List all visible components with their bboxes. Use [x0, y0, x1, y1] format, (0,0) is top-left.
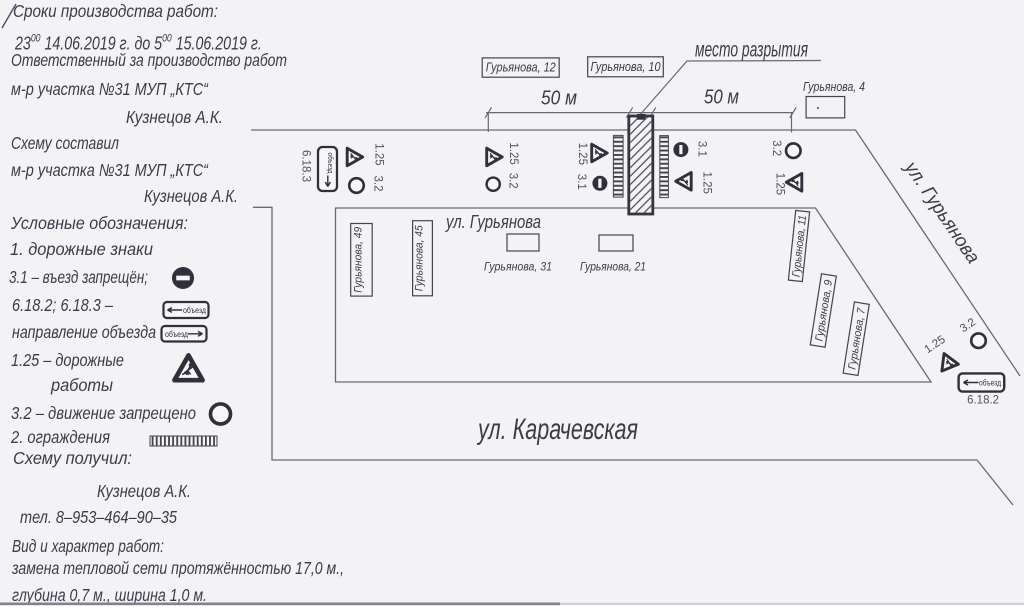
svg-text:2. ограждения: 2. ограждения	[10, 427, 110, 447]
svg-text:3.2: 3.2	[372, 176, 384, 192]
svg-text:Ответственный за производство: Ответственный за производство работ	[11, 50, 287, 70]
svg-text:1. дорожные знаки: 1. дорожные знаки	[10, 239, 153, 259]
svg-text:3.1: 3.1	[696, 141, 708, 157]
svg-text:50 м: 50 м	[704, 86, 739, 109]
svg-text:6.18.3: 6.18.3	[300, 150, 312, 182]
svg-text:1.25: 1.25	[576, 143, 588, 165]
svg-text:Вид и характер работ:: Вид и характер работ:	[12, 536, 164, 556]
svg-text:Гурьянова, 10: Гурьянова, 10	[591, 59, 662, 74]
svg-text:объезд: объезд	[979, 378, 1001, 388]
svg-text:Гурьянова, 12: Гурьянова, 12	[486, 60, 557, 75]
svg-text:Схему получил:: Схему получил:	[13, 448, 132, 468]
svg-text:Гурьянова, 31: Гурьянова, 31	[484, 260, 552, 274]
svg-text:глубина 0,7 м., ширина 1,0 м.: глубина 0,7 м., ширина 1,0 м.	[12, 585, 207, 605]
svg-text:3.2 – движение запрещено: 3.2 – движение запрещено	[11, 403, 196, 423]
svg-text:замена тепловой сети протяжённ: замена тепловой сети протяжённостью 17,0…	[11, 558, 344, 578]
svg-text:Гурьянова, 21: Гурьянова, 21	[580, 260, 646, 274]
svg-text:3.2: 3.2	[506, 173, 518, 189]
svg-text:объезд: объезд	[165, 330, 188, 339]
svg-text:3.2: 3.2	[770, 140, 782, 156]
svg-text:Кузнецов А.К.: Кузнецов А.К.	[97, 481, 191, 501]
svg-text:1.25: 1.25	[700, 172, 712, 194]
svg-text:тел. 8–953–464–90–35: тел. 8–953–464–90–35	[20, 507, 177, 527]
svg-text:м-р участка №31 МУП „КТС“: м-р участка №31 МУП „КТС“	[11, 79, 209, 99]
svg-text:3.1: 3.1	[575, 174, 587, 190]
svg-text:ул. Карачевская: ул. Карачевская	[477, 413, 638, 446]
svg-text:работы: работы	[50, 375, 113, 395]
svg-text:ул. Гурьянова: ул. Гурьянова	[444, 212, 541, 232]
svg-text:Гурьянова, 4: Гурьянова, 4	[803, 80, 865, 94]
svg-text:1.25 – дорожные: 1.25 – дорожные	[11, 350, 124, 370]
svg-text:объезд: объезд	[183, 306, 206, 315]
svg-text:3.1 – въезд запрещён;: 3.1 – въезд запрещён;	[9, 267, 148, 287]
svg-text:Сроки производства работ:: Сроки производства работ:	[13, 1, 218, 21]
svg-text:Схему составил: Схему составил	[11, 133, 119, 153]
svg-text:6.18.2: 6.18.2	[967, 395, 999, 407]
svg-text:направление объезда: направление объезда	[12, 322, 156, 342]
svg-text:50 м: 50 м	[541, 87, 577, 110]
svg-text:Кузнецов А.К.: Кузнецов А.К.	[144, 186, 238, 206]
svg-text:1.25: 1.25	[507, 142, 519, 164]
svg-text:Условные обозначения:: Условные обозначения:	[10, 213, 188, 233]
svg-text:6.18.2; 6.18.3 –: 6.18.2; 6.18.3 –	[12, 295, 113, 315]
svg-text:Кузнецов А.К.: Кузнецов А.К.	[126, 107, 223, 127]
svg-text:1.25: 1.25	[373, 143, 385, 165]
svg-text:место разрытия: место разрытия	[695, 38, 808, 62]
svg-text:объезд: объезд	[326, 153, 335, 175]
svg-text:м-р участка №31 МУП „КТС“: м-р участка №31 МУП „КТС“	[11, 160, 209, 180]
svg-text:Гурьянова, 45: Гурьянова, 45	[414, 224, 426, 291]
svg-text:1.25: 1.25	[773, 173, 785, 195]
svg-text:Гурьянова, 49: Гурьянова, 49	[353, 227, 365, 293]
